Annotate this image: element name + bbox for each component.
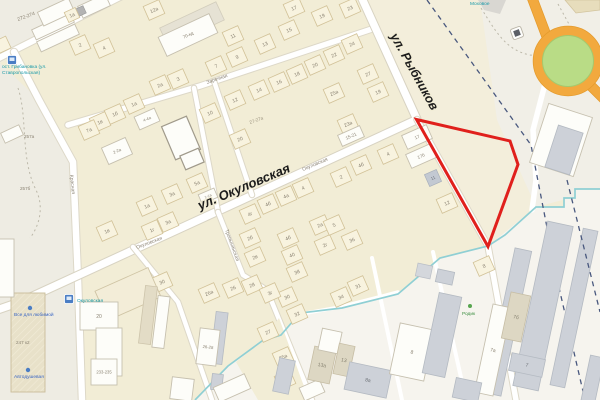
svg-text:Ставропольская): Ставропольская) (2, 70, 40, 76)
svg-text:Окуловская: Окуловская (77, 298, 103, 304)
svg-text:Родик: Родик (462, 311, 476, 317)
svg-text:247 к2: 247 к2 (16, 340, 30, 345)
svg-text:257б: 257б (20, 186, 31, 191)
svg-text:233-235: 233-235 (96, 369, 112, 374)
svg-text:Автодушевая: Автодушевая (14, 374, 44, 380)
svg-text:257а: 257а (24, 134, 35, 139)
svg-text:Моховое: Моховое (470, 1, 490, 7)
svg-text:Все для любимой: Все для любимой (14, 311, 54, 318)
svg-text:20: 20 (96, 314, 102, 320)
svg-text:ост. Грибановка (ул.: ост. Грибановка (ул. (2, 64, 46, 70)
